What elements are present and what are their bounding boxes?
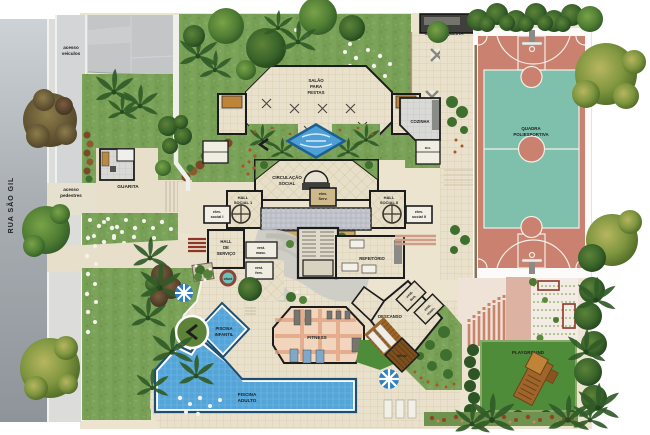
svg-text:elev.: elev. (415, 210, 423, 214)
svg-text:pedestres: pedestres (60, 193, 82, 198)
svg-text:PLAYGROUND: PLAYGROUND (512, 350, 545, 355)
svg-text:social I: social I (211, 215, 224, 219)
svg-text:CIRCULAÇÃO: CIRCULAÇÃO (272, 175, 302, 180)
svg-text:social II: social II (412, 215, 426, 219)
svg-text:REFEITÓRIO: REFEITÓRIO (359, 256, 385, 261)
svg-text:bilhar: bilhar (397, 354, 407, 358)
svg-text:masc.: masc. (256, 251, 266, 255)
svg-text:w.c.: w.c. (424, 146, 431, 150)
svg-text:SERVIÇO: SERVIÇO (217, 251, 237, 256)
svg-text:QUADRA: QUADRA (521, 126, 541, 131)
svg-text:SALÃO: SALÃO (308, 78, 324, 83)
svg-text:vest.: vest. (257, 246, 265, 250)
svg-text:elev.: elev. (213, 210, 221, 214)
svg-text:PISCINA: PISCINA (216, 326, 233, 331)
svg-text:INFANTIL: INFANTIL (215, 332, 234, 337)
svg-text:PARA: PARA (310, 84, 323, 89)
svg-text:GUARITA: GUARITA (117, 184, 139, 190)
svg-text:Serv.: Serv. (318, 197, 327, 201)
svg-text:FITNESS: FITNESS (307, 335, 326, 340)
svg-text:RUA SÃO GIL: RUA SÃO GIL (6, 177, 15, 234)
svg-text:veículos: veículos (62, 51, 81, 56)
svg-text:FESTAS: FESTAS (308, 90, 325, 95)
svg-text:DE: DE (223, 245, 229, 250)
svg-text:SOCIAL II: SOCIAL II (380, 200, 398, 205)
svg-text:POLIESPORTIVA: POLIESPORTIVA (513, 132, 549, 137)
svg-text:COZINHA: COZINHA (410, 119, 429, 124)
svg-text:elev.: elev. (319, 192, 327, 196)
svg-text:ADULTO: ADULTO (238, 398, 257, 403)
svg-text:SOCIAL: SOCIAL (279, 181, 296, 186)
svg-text:acesso: acesso (63, 45, 79, 50)
svg-text:ofurô: ofurô (224, 277, 233, 281)
svg-text:SOCIAL 1: SOCIAL 1 (234, 200, 253, 205)
svg-text:HALL: HALL (220, 239, 232, 244)
svg-text:fem.: fem. (255, 271, 262, 275)
svg-text:PISCINA: PISCINA (238, 392, 257, 397)
svg-text:DESCANSO: DESCANSO (378, 314, 402, 319)
svg-text:acesso: acesso (63, 187, 79, 192)
svg-text:vest.: vest. (255, 266, 263, 270)
